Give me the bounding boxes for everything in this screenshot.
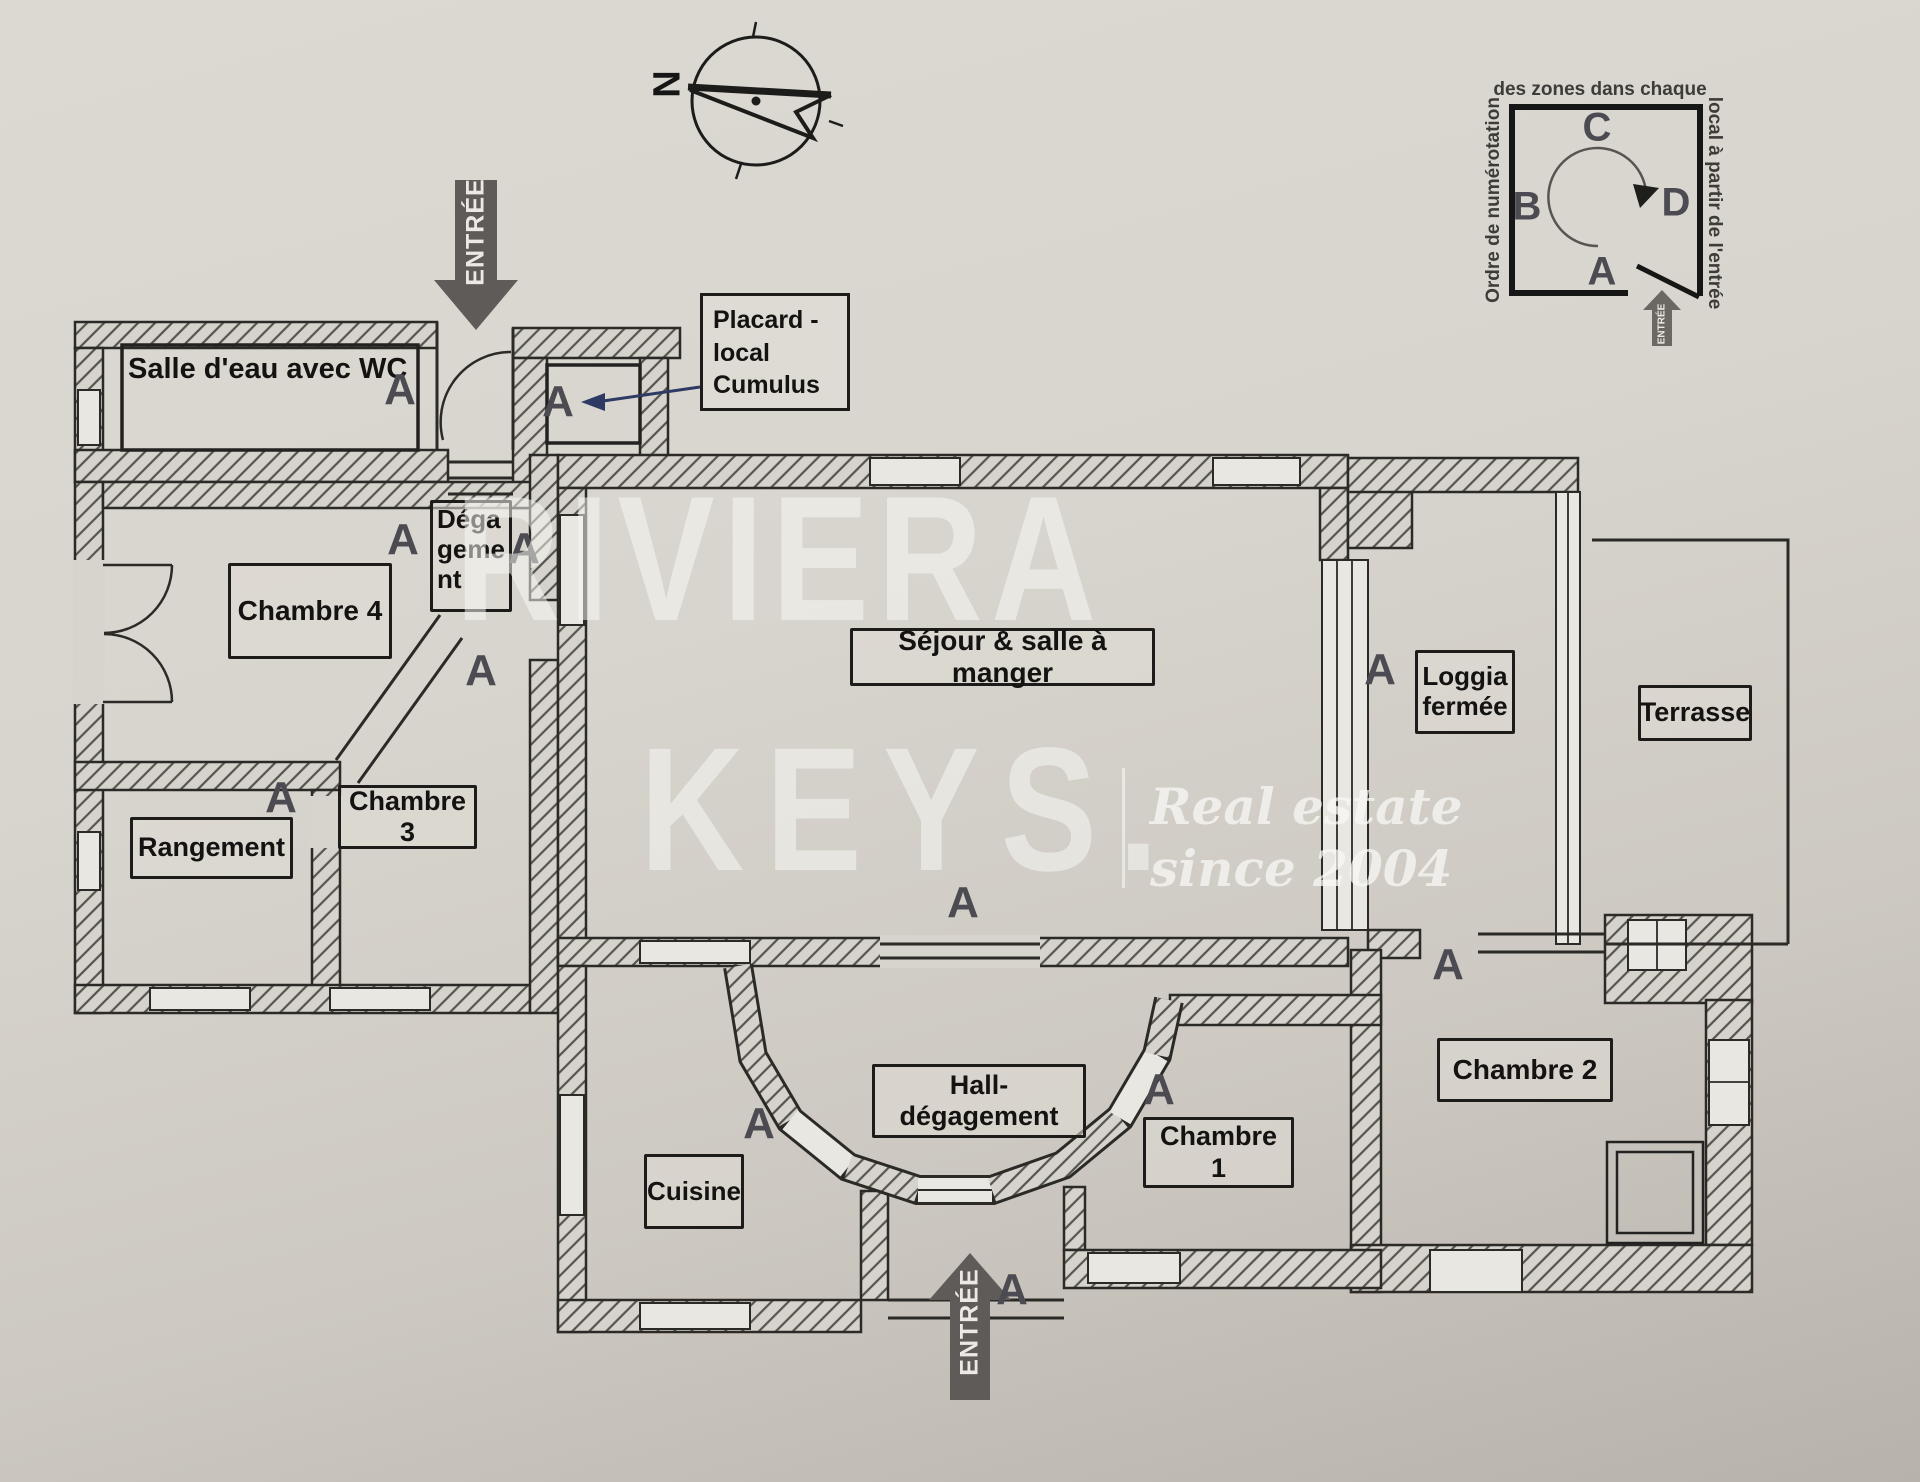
- zone-marker-cuisine: A: [743, 1102, 775, 1146]
- entrance-bottom-label: ENTRÉE: [956, 1268, 985, 1375]
- legend-zone-a: A: [1588, 250, 1617, 295]
- floor-plan-page: Salle d'eau avec WC Chambre 4 Dégagement…: [0, 0, 1920, 1482]
- terrace-outline: [1592, 540, 1788, 944]
- zone-marker-salle-eau: A: [384, 368, 416, 412]
- room-label-salle-eau: Salle d'eau avec WC: [128, 353, 407, 386]
- compass-north-label: N: [647, 70, 690, 97]
- room-label-cuisine: Cuisine: [644, 1154, 744, 1229]
- annotation-placard: Placard - local Cumulus: [700, 293, 850, 411]
- legend-caption-right: local à partir de l'entrée: [1703, 97, 1725, 310]
- watermark-tagline-line1: Real estate: [1150, 782, 1463, 832]
- legend-entry-label: ENTRÉE: [1657, 304, 1668, 345]
- entrance-top-label: ENTRÉE: [462, 178, 491, 285]
- zone-marker-entry: A: [996, 1268, 1028, 1312]
- room-label-chambre-4: Chambre 4: [228, 563, 392, 659]
- watermark-brand-line1: RIVIERA: [455, 470, 1104, 648]
- room-label-hall: Hall-dégagement: [872, 1064, 1086, 1138]
- zone-marker-chambre-1: A: [1143, 1068, 1175, 1112]
- zone-marker-chambre-2: A: [1432, 943, 1464, 987]
- legend-zone-c: C: [1583, 106, 1612, 151]
- watermark-divider: [1122, 768, 1125, 888]
- compass-rose: [688, 22, 843, 179]
- room-label-terrasse: Terrasse: [1638, 685, 1752, 741]
- zone-marker-placard: A: [542, 380, 574, 424]
- zone-marker-chambre-4: A: [387, 518, 419, 562]
- watermark-tagline-line2: since 2004: [1150, 844, 1452, 894]
- room-label-loggia: Loggia fermée: [1415, 650, 1515, 734]
- zone-marker-rangement: A: [265, 776, 297, 820]
- room-label-chambre-2: Chambre 2: [1437, 1038, 1613, 1102]
- legend-zone-d: D: [1662, 181, 1691, 226]
- legend-caption-left: Ordre de numérotation: [1483, 97, 1505, 303]
- legend-caption-top: des zones dans chaque: [1493, 79, 1706, 101]
- room-label-chambre-3: Chambre 3: [338, 785, 477, 849]
- zone-marker-loggia: A: [1364, 648, 1396, 692]
- room-label-rangement: Rangement: [130, 817, 293, 879]
- legend-zone-b: B: [1513, 185, 1542, 230]
- room-label-chambre-1: Chambre 1: [1143, 1117, 1294, 1188]
- watermark-brand-line2: KEYS.: [640, 722, 1180, 898]
